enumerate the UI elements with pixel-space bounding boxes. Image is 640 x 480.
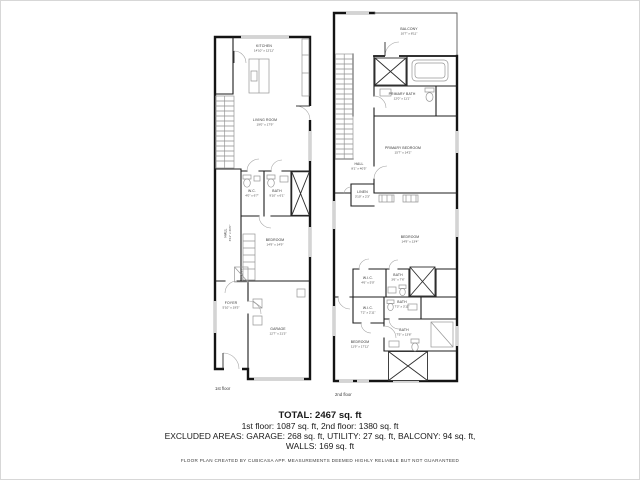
- garage-equipment: [253, 289, 305, 325]
- garage-door-arc: [248, 301, 261, 314]
- toilet-tank: [387, 300, 394, 304]
- door-arc: [389, 260, 398, 269]
- room-dims-bath: 7'5" x 13'8": [396, 333, 411, 337]
- door-arc: [361, 323, 371, 333]
- room-dims-bath: 9'10" x 6'1": [269, 194, 284, 198]
- room-dims-kitchen: 14'10" x 12'11": [254, 49, 274, 53]
- room-dims-primary-bath: 12'0" x 11'1": [394, 97, 411, 101]
- toilet-fixture: [425, 88, 434, 101]
- room-dims-linen: 3'10" x 2'3": [355, 195, 370, 199]
- hall-label-group: HALL 3'11" x 20'0": [224, 225, 233, 242]
- walls-area-text: WALLS: 169 sq. ft: [1, 441, 639, 451]
- sink-fixture: [388, 287, 396, 293]
- shower-diag: [431, 322, 453, 347]
- room-label-balcony: BALCONY: [400, 27, 418, 31]
- sink-fixture: [254, 176, 260, 181]
- floorplan-1st-floor: KITCHEN 14'10" x 12'11" LIVING ROOM 19'0…: [215, 37, 310, 391]
- utility-label-group: UTILITY: [240, 269, 244, 281]
- shaft: [410, 267, 435, 296]
- front-door-arc: [223, 353, 239, 369]
- door-arc: [225, 281, 237, 293]
- toilet-bowl: [244, 179, 251, 187]
- room-label-kitchen: KITCHEN: [256, 44, 272, 48]
- room-dims-primary-bedroom: 15'7" x 14'2": [395, 151, 412, 155]
- room-label-primary-bedroom: PRIMARY BEDROOM: [385, 146, 421, 150]
- room-label-bath: BATH: [399, 328, 409, 332]
- stairs: [336, 54, 354, 159]
- door-arc: [259, 216, 271, 228]
- stairs: [216, 96, 235, 168]
- toilet-fixture: [387, 300, 394, 311]
- room-label-bath: BATH: [393, 273, 403, 277]
- room-dims-bath: 3'6" x 7'6": [391, 278, 405, 282]
- room-label-wic: W.I.C.: [363, 276, 373, 280]
- door-arc: [374, 166, 387, 179]
- floor-areas-text: 1st floor: 1087 sq. ft, 2nd floor: 1380 …: [1, 421, 639, 431]
- room-label-garage: GARAGE: [270, 327, 286, 331]
- toilet-fixture: [411, 339, 419, 351]
- bathtub-fixture: [412, 60, 448, 81]
- excluded-areas-text: EXCLUDED AREAS: GARAGE: 268 sq. ft, UTIL…: [1, 431, 639, 441]
- total-area-text: TOTAL: 2467 sq. ft: [1, 410, 639, 421]
- closet-shelves: [243, 241, 255, 269]
- toilet-fixture: [267, 175, 275, 187]
- room-label-hall: HALL: [354, 162, 363, 166]
- room-dims-hall: 3'11" x 20'0": [228, 225, 232, 242]
- door-arc: [374, 96, 386, 108]
- toilet-bowl: [388, 303, 394, 310]
- floor2-caption: 2nd floor: [335, 392, 352, 397]
- room-label-bath: BATH: [272, 189, 282, 193]
- room-dims-garage: 12'7" x 21'3": [270, 332, 287, 336]
- door-arc: [359, 259, 369, 269]
- door-arc: [271, 160, 282, 171]
- floorplan-page: KITCHEN 14'10" x 12'11" LIVING ROOM 19'0…: [0, 0, 640, 480]
- toilet-tank: [411, 339, 419, 343]
- floorplan-2nd-floor: BALCONY 10'7" x 8'11" PRIMARY BATH 12'0"…: [334, 13, 457, 397]
- room-label-foyer: FOYER: [225, 301, 238, 305]
- room-dims-foyer: 5'10" x 19'5": [223, 306, 240, 310]
- room-dims-bedroom: 14'9" x 13'4": [402, 240, 419, 244]
- door-arc: [247, 159, 259, 171]
- island-detail: [251, 59, 259, 93]
- toilet-bowl: [268, 179, 275, 187]
- room-dims-wc: 4'0" x 6'7": [245, 194, 259, 198]
- kitchen-island: [249, 59, 269, 93]
- room-dims-living-room: 19'0" x 17'9": [257, 123, 274, 127]
- door-arc: [389, 319, 399, 329]
- room-label-bedroom: BEDROOM: [351, 340, 370, 344]
- room-dims-balcony: 10'7" x 8'11": [401, 32, 418, 36]
- toilet-tank: [399, 285, 406, 289]
- floorplan-drawing: KITCHEN 14'10" x 12'11" LIVING ROOM 19'0…: [1, 1, 640, 480]
- room-label-wc: W.C.: [248, 189, 256, 193]
- toilet-bowl: [426, 93, 433, 102]
- room-dims-wic: 4'6" x 5'0": [361, 281, 375, 285]
- summary-block: TOTAL: 2467 sq. ft 1st floor: 1087 sq. f…: [1, 410, 639, 463]
- toilet-fixture: [243, 175, 251, 187]
- shaft: [375, 58, 406, 85]
- shaft: [389, 352, 428, 381]
- disclaimer-text: FLOOR PLAN CREATED BY CUBICASA APP. MEAS…: [1, 458, 639, 463]
- room-dims-wic: 7'2" x 2'11": [360, 311, 375, 315]
- room-label-living-room: LIVING ROOM: [253, 118, 277, 122]
- toilet-tank: [425, 88, 434, 92]
- toilet-tank: [267, 175, 275, 179]
- sink-fixture: [280, 176, 288, 182]
- room-label-bedroom: BEDROOM: [401, 235, 420, 239]
- door-arc: [296, 106, 310, 120]
- door-arc: [234, 51, 246, 63]
- room-label-linen: LINEN: [357, 190, 368, 194]
- room-label-bath: BATH: [397, 300, 407, 304]
- floor1-caption: 1st floor: [215, 386, 231, 391]
- tub-inner: [415, 63, 445, 78]
- room-label-primary-bath: PRIMARY BATH: [389, 92, 416, 96]
- door-arc: [338, 297, 350, 309]
- counter-outline: [302, 39, 309, 96]
- toilet-tank: [243, 175, 251, 179]
- room-dims-bedroom: 11'9" x 17'11": [351, 345, 369, 349]
- kitchen-counter: [302, 39, 309, 96]
- sink-fixture: [389, 341, 399, 347]
- room-dims-bedroom: 14'9" x 14'9": [267, 243, 284, 247]
- room-dims-hall: 8'1" x 40'5": [351, 167, 366, 171]
- room-dims-bath: 7'3" x 3'11": [394, 305, 409, 309]
- toilet-bowl: [400, 288, 406, 295]
- room-label-utility: UTILITY: [240, 269, 244, 281]
- bedroom1-closets: [379, 195, 418, 202]
- balcony-door-arc: [385, 42, 399, 56]
- room-label-bedroom: BEDROOM: [266, 238, 285, 242]
- room-label-wic: W.I.C.: [363, 306, 373, 310]
- toilet-bowl: [412, 343, 418, 351]
- closet-shaft: [292, 172, 310, 216]
- shower-fixture: [431, 322, 453, 347]
- toilet-fixture: [399, 285, 406, 296]
- counter-detail: [302, 55, 309, 73]
- room-label-hall: HALL: [224, 228, 228, 237]
- bedroom-closet: [243, 234, 255, 280]
